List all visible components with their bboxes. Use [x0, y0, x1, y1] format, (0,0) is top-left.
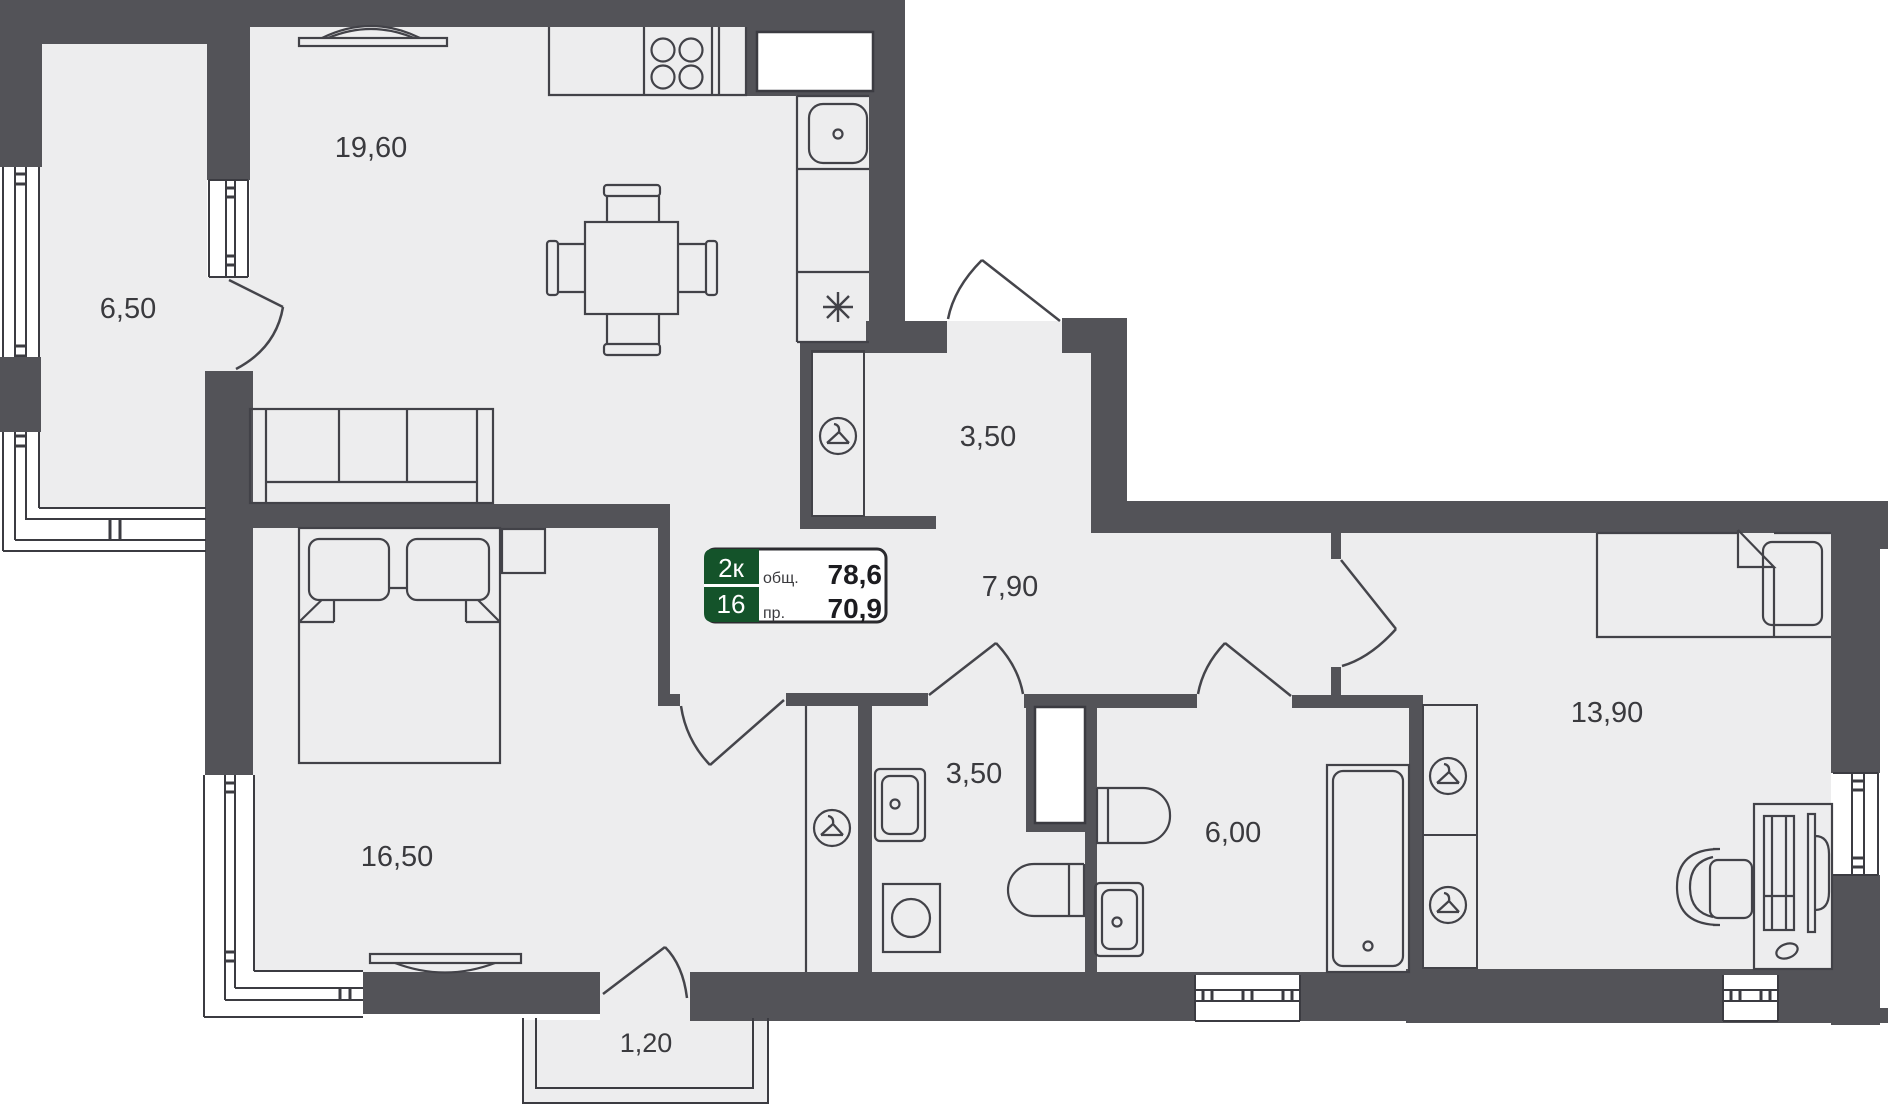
svg-text:16,50: 16,50: [361, 841, 434, 873]
svg-text:пр.: пр.: [763, 605, 785, 622]
svg-text:6,50: 6,50: [100, 293, 156, 325]
svg-text:19,60: 19,60: [335, 132, 408, 164]
svg-text:6,00: 6,00: [1205, 817, 1261, 849]
svg-text:78,6: 78,6: [828, 559, 883, 590]
svg-text:13,90: 13,90: [1571, 697, 1644, 729]
svg-text:16: 16: [717, 589, 746, 619]
svg-text:3,50: 3,50: [946, 758, 1002, 790]
svg-text:7,90: 7,90: [982, 571, 1038, 603]
svg-text:общ.: общ.: [763, 570, 799, 587]
svg-text:3,50: 3,50: [960, 421, 1016, 453]
svg-text:70,9: 70,9: [828, 593, 883, 624]
svg-text:2к: 2к: [718, 553, 744, 583]
svg-text:1,20: 1,20: [620, 1028, 673, 1058]
